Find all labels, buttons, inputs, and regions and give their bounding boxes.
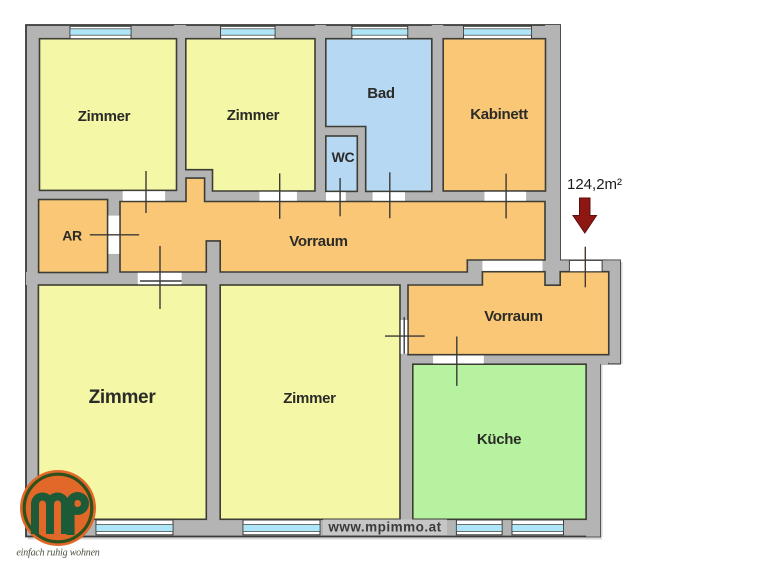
svg-text:Vorraum: Vorraum [484,308,542,325]
svg-text:Kabinett: Kabinett [470,106,528,123]
svg-text:124,2m²: 124,2m² [567,176,622,193]
svg-text:www.mpimmo.at: www.mpimmo.at [327,520,441,535]
svg-text:Zimmer: Zimmer [283,390,336,407]
svg-text:Zimmer: Zimmer [227,107,280,124]
svg-text:einfach ruhig wohnen: einfach ruhig wohnen [16,548,99,559]
svg-text:Zimmer: Zimmer [78,108,131,125]
svg-text:Zimmer: Zimmer [89,387,157,408]
svg-text:Bad: Bad [367,85,395,102]
svg-text:Küche: Küche [477,431,521,448]
svg-text:WC: WC [332,149,355,165]
svg-text:Vorraum: Vorraum [289,233,347,250]
svg-text:AR: AR [62,228,82,244]
